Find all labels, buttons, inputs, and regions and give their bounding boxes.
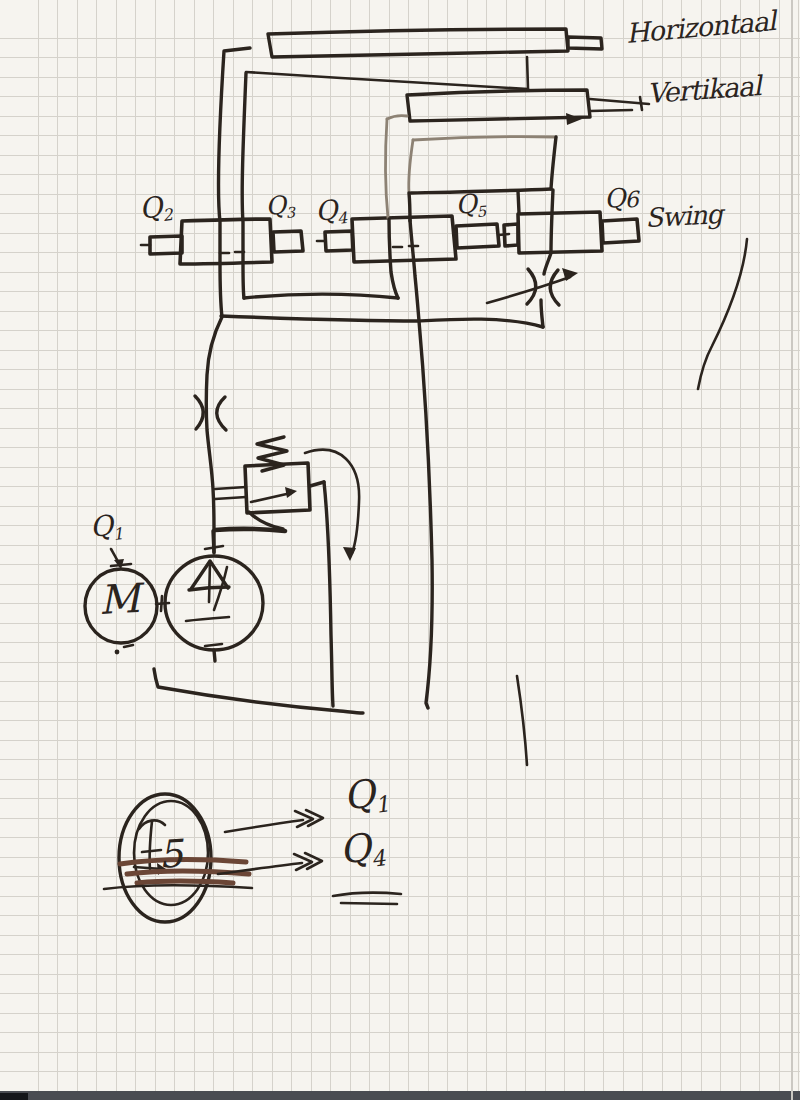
motor-letter: M — [98, 578, 140, 620]
q4-sub: 4 — [336, 208, 348, 228]
valve2-return-line-long — [410, 220, 432, 708]
scan-edge-bottom — [0, 1091, 800, 1100]
riser-valve2-left — [386, 116, 407, 298]
stray-line-right — [517, 676, 527, 765]
cylinder-vertical — [407, 90, 649, 125]
valve3-through-line — [541, 190, 553, 327]
legend-arrows — [218, 810, 323, 874]
label-q3: Q3 — [265, 192, 296, 223]
valve-block-1 — [141, 219, 303, 264]
q6-base: Q — [603, 183, 625, 214]
q4-underline — [333, 893, 401, 904]
swing-flourish — [698, 239, 747, 389]
legend-target-q4: Q4 — [337, 826, 387, 875]
pump-circle — [165, 556, 263, 650]
throttle-orifice-fixed — [195, 396, 226, 430]
q3-base: Q — [264, 190, 286, 221]
valve-block-3 — [504, 212, 639, 253]
q5-base: Q — [454, 188, 477, 220]
q1-sub: 1 — [112, 524, 124, 544]
scan-edge-right — [791, 0, 793, 1100]
legend-gauge-value: 5 — [157, 834, 183, 874]
arrowhead-flow — [343, 547, 356, 561]
flow-direction-arrow — [305, 450, 359, 561]
cylinder-horizontal — [246, 29, 602, 89]
label-q5: Q5 — [454, 190, 486, 223]
q1-base: Q — [88, 509, 113, 544]
scan-edge-corner — [0, 1093, 28, 1100]
bottom-link-line-b — [221, 316, 543, 327]
q5-sub: 5 — [476, 202, 487, 221]
q6-sub: 6 — [624, 186, 640, 213]
legend-q1-base: Q — [341, 771, 377, 819]
graph-paper-sheet: Horizontaal Vertikaal Swing Q2 Q3 Q4 Q5 … — [0, 0, 800, 1100]
q4-base: Q — [314, 194, 338, 227]
label-q4: Q4 — [314, 195, 348, 229]
arrowhead-relief — [285, 487, 297, 498]
label-q6: Q6 — [603, 184, 639, 213]
q3-sub: 3 — [285, 204, 296, 221]
arrowhead-vertical-rod — [566, 113, 582, 125]
legend-q4-base: Q — [337, 825, 373, 873]
label-vertical: Vertikaal — [646, 72, 761, 107]
label-q2: Q2 — [138, 192, 174, 228]
throttle-orifice-adjustable — [487, 268, 578, 305]
q2-base: Q — [137, 190, 163, 226]
legend-target-q1: Q1 — [341, 772, 391, 821]
schematic-drawing — [0, 0, 800, 1100]
label-q1-pump: Q1 — [89, 511, 124, 546]
bottom-link-line-a — [244, 294, 398, 298]
label-swing: Swing — [645, 201, 723, 231]
return-line-to-tank — [324, 482, 333, 706]
